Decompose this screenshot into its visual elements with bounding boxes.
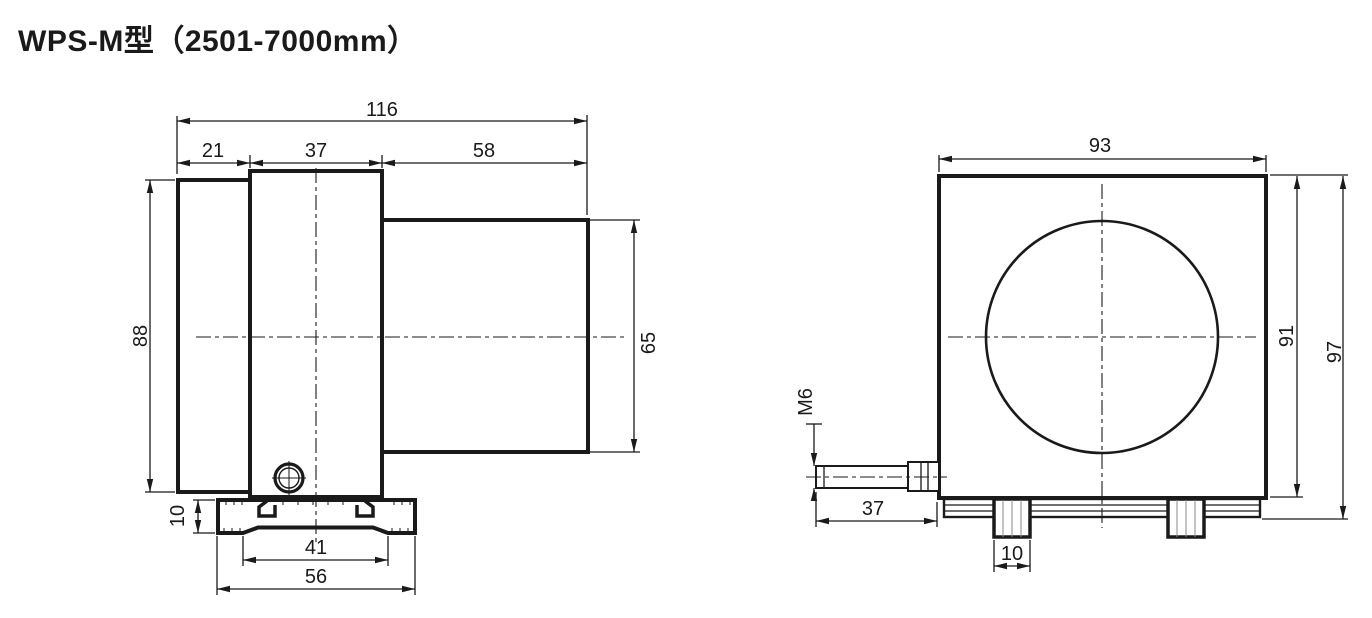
dim-label-21: 21 bbox=[202, 140, 224, 162]
dim-label-41: 41 bbox=[305, 537, 327, 559]
dim-label-65: 65 bbox=[638, 332, 660, 354]
wire-outlet-rod bbox=[806, 462, 947, 491]
dim-label-58: 58 bbox=[473, 140, 495, 162]
dim-label-88: 88 bbox=[130, 325, 152, 347]
dim-label-37-front: 37 bbox=[862, 498, 884, 520]
dim-10-extension-lines bbox=[193, 500, 215, 533]
dim-label-91: 91 bbox=[1276, 325, 1298, 347]
dim-93-extension-lines bbox=[939, 155, 1266, 172]
side-view-rear-block bbox=[178, 180, 250, 492]
dim-65-extension-lines bbox=[590, 220, 640, 452]
dim-label-116: 116 bbox=[366, 99, 398, 121]
dim-label-37: 37 bbox=[305, 140, 327, 162]
dim-label-10: 10 bbox=[167, 505, 189, 527]
dim-label-m6: M6 bbox=[795, 388, 817, 416]
dim-label-93: 93 bbox=[1089, 135, 1111, 157]
drawing-page: WPS-M型（2501-7000mm） bbox=[0, 0, 1372, 618]
side-view: 116 21 37 58 88 65 10 bbox=[130, 99, 660, 595]
side-view-sensor-block bbox=[382, 220, 588, 452]
front-view: 93 91 97 M6 37 bbox=[795, 135, 1348, 572]
dim-label-10-front: 10 bbox=[1001, 543, 1023, 565]
dim-label-97: 97 bbox=[1324, 341, 1346, 363]
dim-label-56: 56 bbox=[305, 566, 327, 588]
technical-drawing-canvas: 116 21 37 58 88 65 10 bbox=[0, 0, 1372, 618]
side-view-body bbox=[178, 171, 588, 497]
